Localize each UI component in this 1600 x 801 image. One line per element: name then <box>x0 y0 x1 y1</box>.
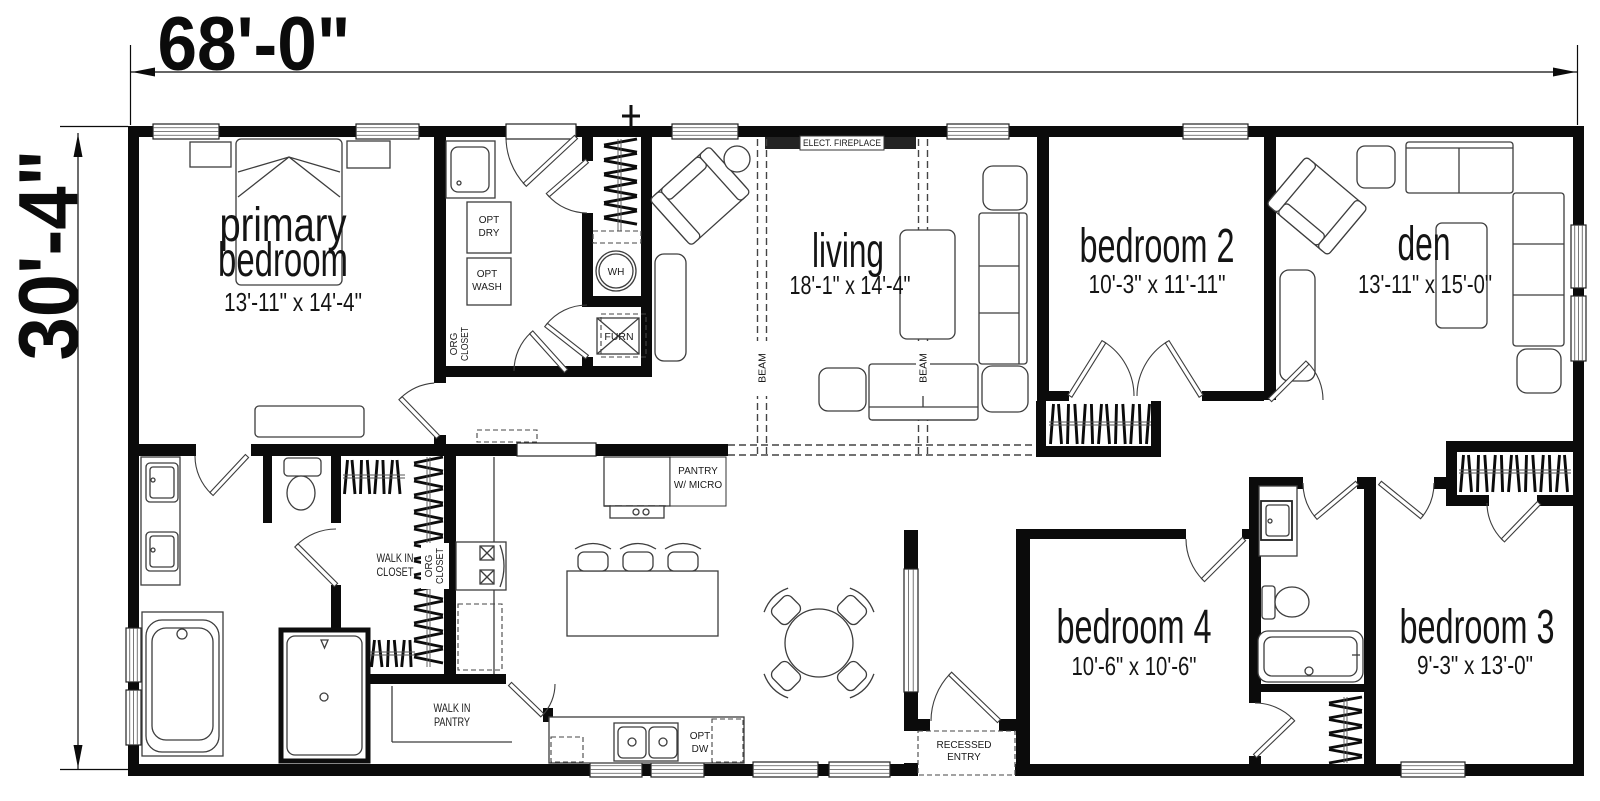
svg-text:10'-6" x 10'-6": 10'-6" x 10'-6" <box>1072 651 1197 681</box>
svg-text:den: den <box>1398 218 1451 271</box>
svg-text:OPT: OPT <box>477 269 498 280</box>
svg-text:DW: DW <box>692 744 709 755</box>
svg-text:RECESSED: RECESSED <box>936 740 991 751</box>
svg-text:WALK IN: WALK IN <box>377 551 414 565</box>
svg-text:ENTRY: ENTRY <box>947 752 981 763</box>
svg-text:9'-3" x 13'-0": 9'-3" x 13'-0" <box>1417 650 1533 680</box>
svg-text:18'-1" x 14'-4": 18'-1" x 14'-4" <box>790 270 911 300</box>
svg-text:bedroom: bedroom <box>218 234 348 287</box>
svg-text:68'-0": 68'-0" <box>158 2 351 87</box>
svg-text:bedroom 4: bedroom 4 <box>1057 601 1212 654</box>
svg-text:WASH: WASH <box>472 282 502 293</box>
svg-text:bedroom 2: bedroom 2 <box>1080 220 1235 273</box>
svg-text:OPT: OPT <box>690 731 711 742</box>
svg-text:ELECT. FIREPLACE: ELECT. FIREPLACE <box>803 138 881 148</box>
svg-text:30'-4": 30'-4" <box>2 150 96 361</box>
svg-text:ORG: ORG <box>424 554 435 577</box>
svg-text:WH: WH <box>608 267 625 278</box>
svg-text:DRY: DRY <box>479 228 500 239</box>
svg-text:PANTRY: PANTRY <box>678 466 718 477</box>
svg-text:FURN: FURN <box>604 331 633 343</box>
svg-text:BEAM: BEAM <box>757 353 769 383</box>
svg-text:WALK IN: WALK IN <box>434 701 471 715</box>
svg-text:13'-11" x 14'-4": 13'-11" x 14'-4" <box>224 287 362 317</box>
svg-text:PANTRY: PANTRY <box>434 715 470 729</box>
svg-text:CLOSET: CLOSET <box>460 327 471 361</box>
svg-text:10'-3" x 11'-11": 10'-3" x 11'-11" <box>1089 269 1226 299</box>
svg-text:CLOSET: CLOSET <box>435 548 446 584</box>
svg-text:CLOSET: CLOSET <box>377 565 415 579</box>
svg-text:13'-11" x 15'-0": 13'-11" x 15'-0" <box>1358 269 1492 299</box>
svg-text:ORG: ORG <box>449 332 460 355</box>
svg-text:BEAM: BEAM <box>918 353 930 383</box>
svg-text:W/ MICRO: W/ MICRO <box>674 480 723 491</box>
svg-text:bedroom 3: bedroom 3 <box>1400 601 1555 654</box>
svg-text:OPT: OPT <box>479 215 500 226</box>
